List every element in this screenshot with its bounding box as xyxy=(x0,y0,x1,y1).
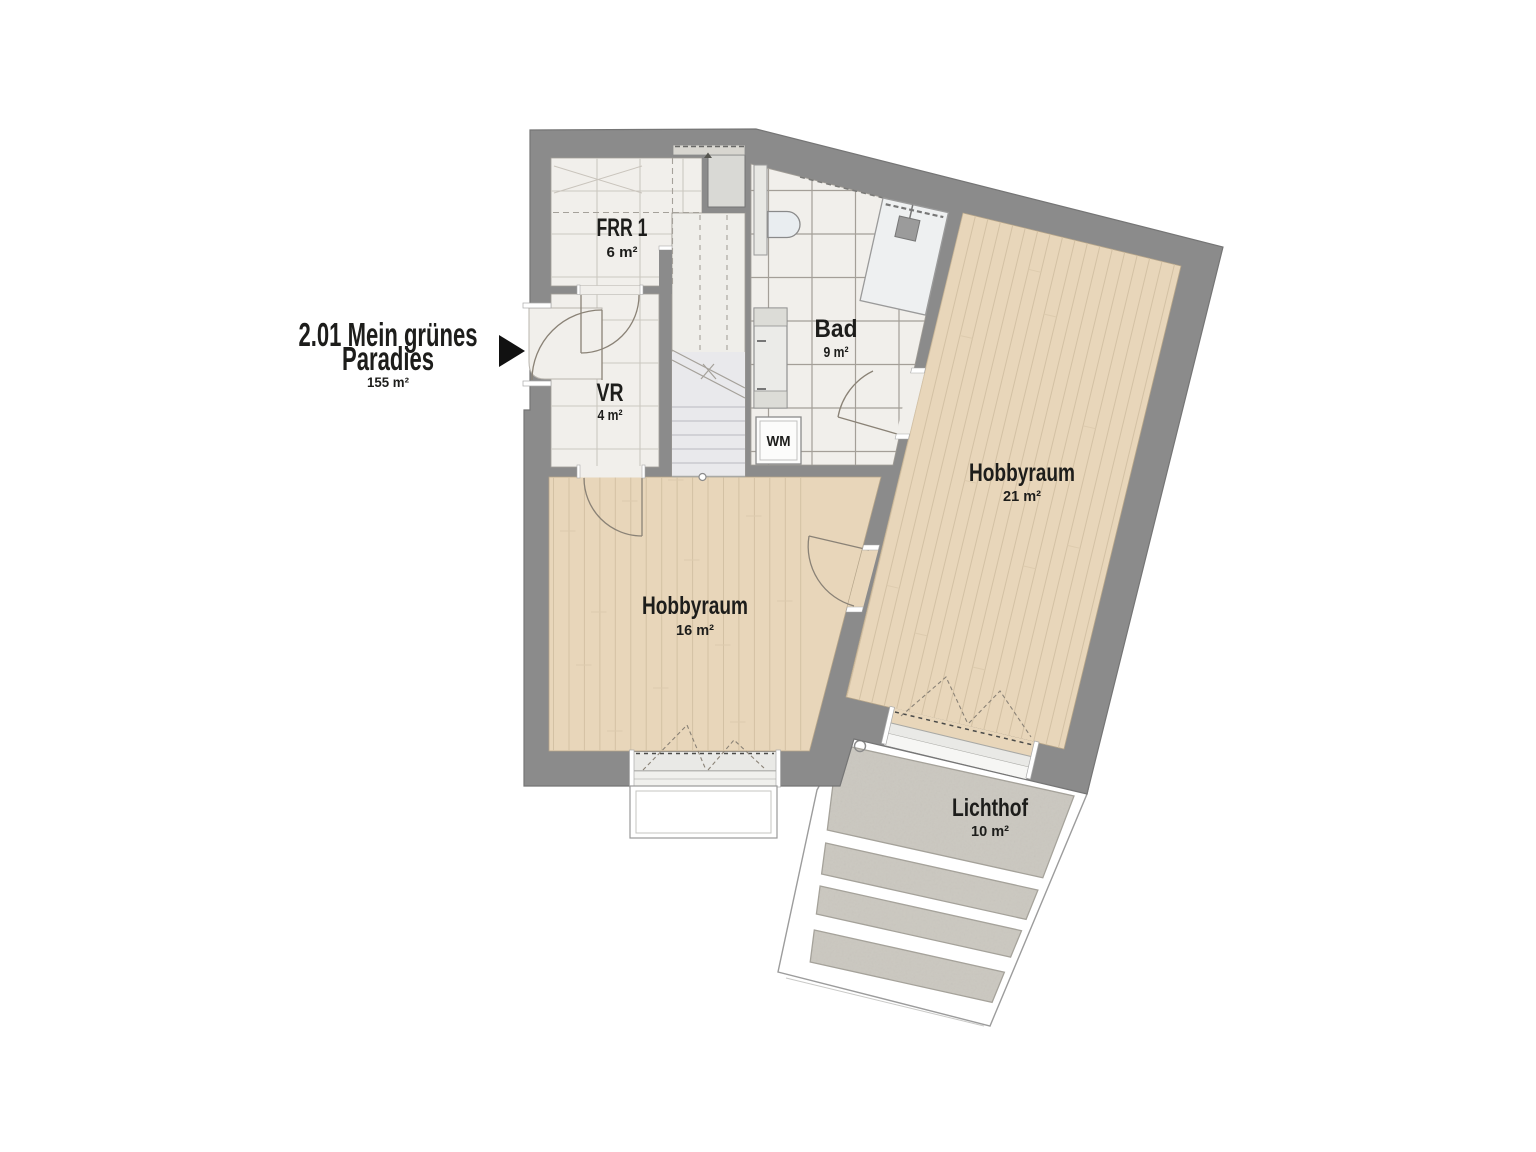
svg-text:VR: VR xyxy=(597,379,624,407)
svg-text:155 m²: 155 m² xyxy=(367,374,409,390)
svg-text:6 m²: 6 m² xyxy=(607,244,638,261)
svg-text:Bad: Bad xyxy=(815,315,858,343)
svg-text:10 m²: 10 m² xyxy=(971,823,1009,840)
svg-text:16 m²: 16 m² xyxy=(676,622,714,639)
svg-text:21 m²: 21 m² xyxy=(1003,488,1041,505)
svg-text:9 m²: 9 m² xyxy=(824,344,849,361)
svg-text:WM: WM xyxy=(767,433,791,450)
svg-text:Lichthof: Lichthof xyxy=(952,794,1029,822)
svg-text:4 m²: 4 m² xyxy=(598,407,623,424)
svg-text:Hobbyraum: Hobbyraum xyxy=(969,459,1075,487)
svg-text:Paradies: Paradies xyxy=(342,340,434,377)
svg-text:Hobbyraum: Hobbyraum xyxy=(642,592,748,620)
svg-text:FRR 1: FRR 1 xyxy=(597,214,648,242)
